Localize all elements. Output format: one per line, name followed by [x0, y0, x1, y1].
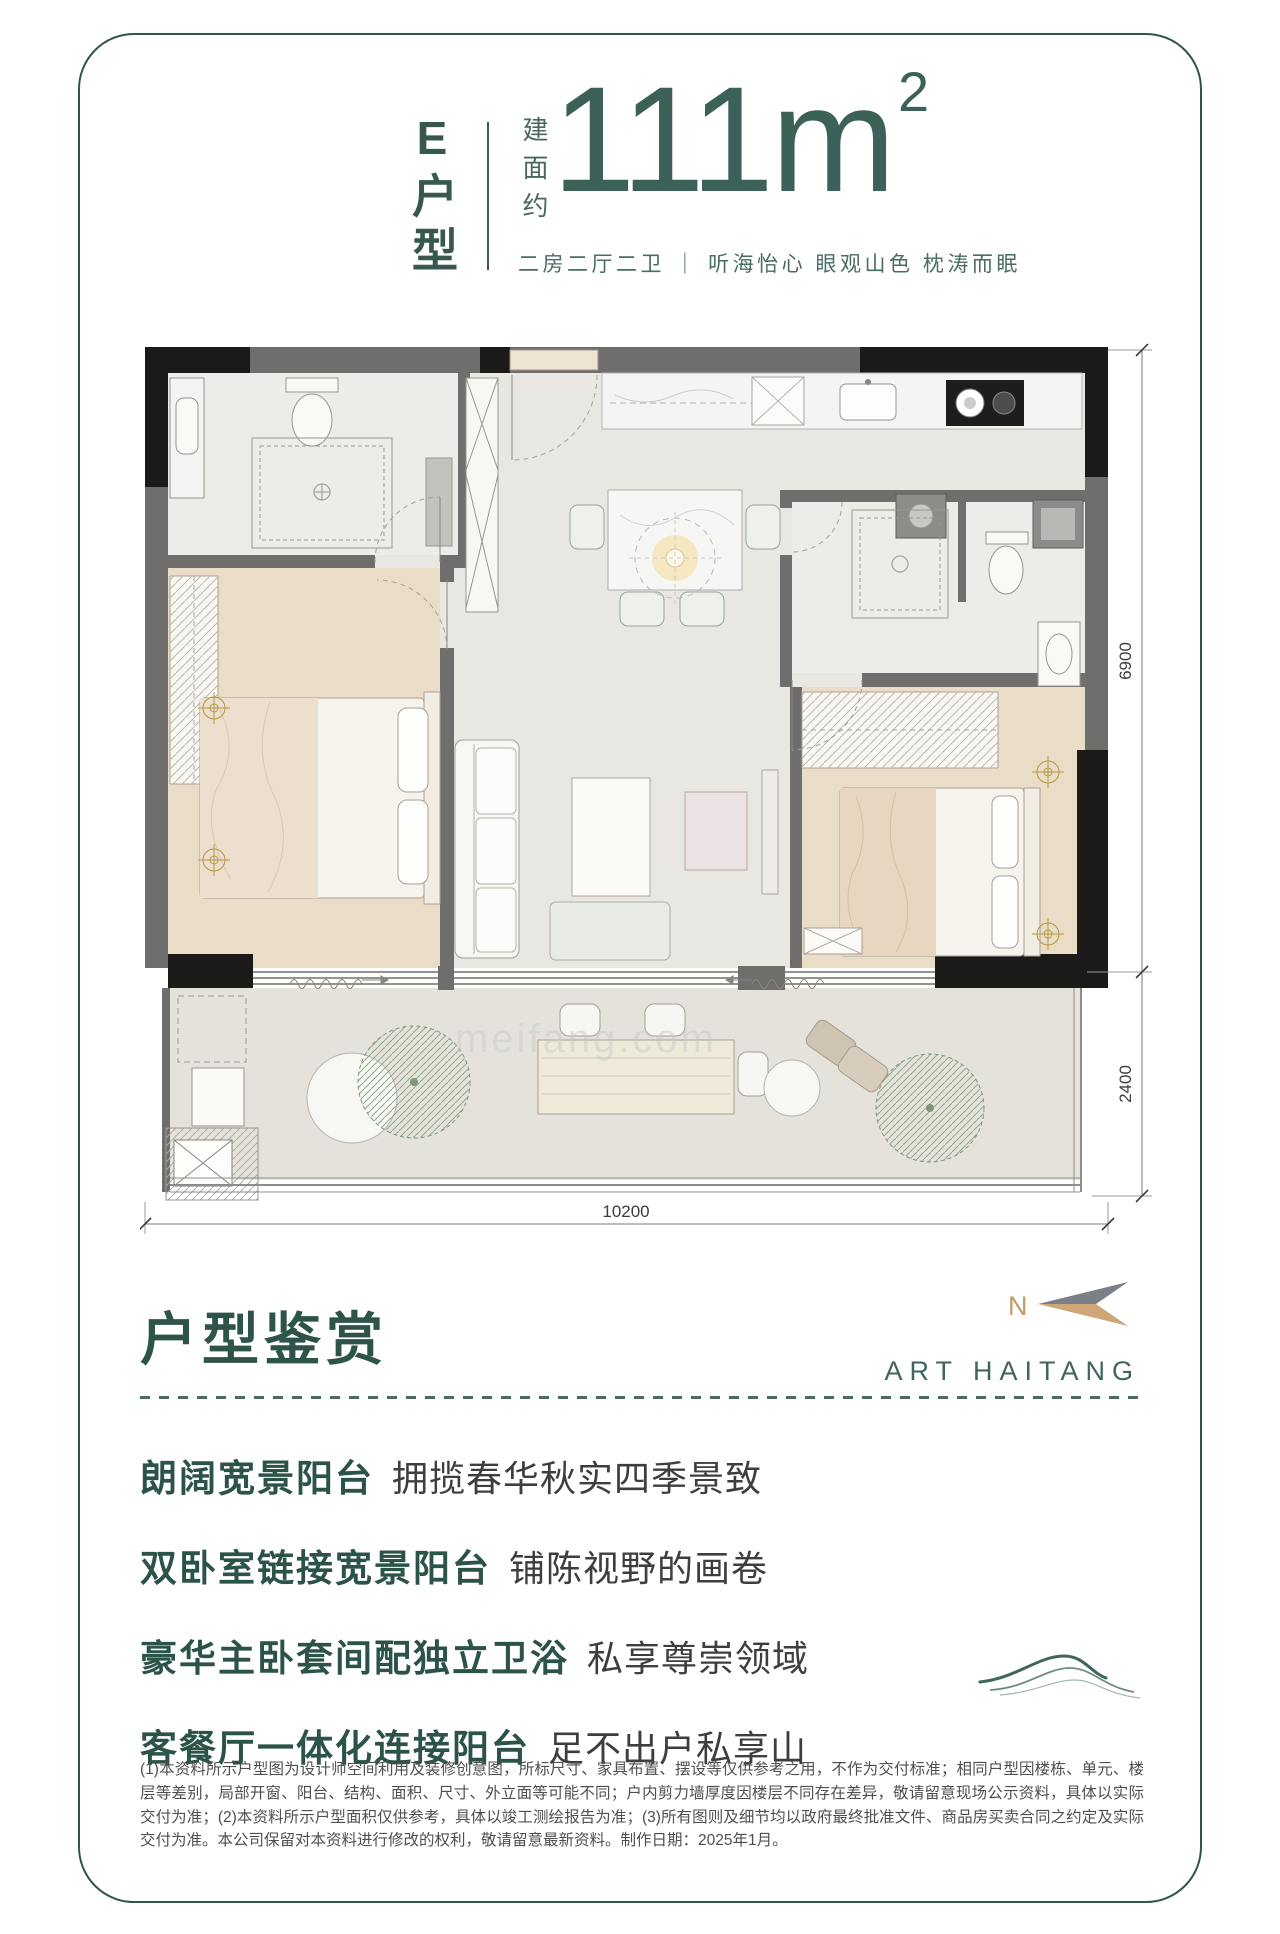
- wave-line-2: [990, 1668, 1134, 1692]
- dining-chair: [680, 592, 724, 626]
- feature-item: 豪华主卧套间配独立卫浴私享尊崇领域: [140, 1628, 1040, 1682]
- wave-logo: [972, 1642, 1147, 1704]
- pillow: [398, 800, 428, 884]
- wall-bath2-bottom-a: [780, 673, 792, 687]
- header-tagline: 二房二厅二卫 ｜ 听海怡心 眼观山色 枕涛而眠: [518, 248, 1021, 278]
- feature-head: 豪华主卧套间配独立卫浴: [140, 1639, 569, 1680]
- vanity2: [1038, 622, 1080, 686]
- sofa-cushion: [476, 888, 516, 952]
- feature-item: 朗阔宽景阳台拥揽春华秋实四季景致: [140, 1448, 1040, 1502]
- master-duvet: [200, 698, 318, 898]
- floorplan-drawing: meifang.com 6900 2400 10200: [140, 340, 1160, 1245]
- feature-desc: 铺陈视野的画卷: [509, 1549, 768, 1589]
- dim-height-main: 6900: [1116, 642, 1135, 680]
- planter-pot: [764, 1060, 820, 1116]
- dim-height-balcony: 2400: [1116, 1065, 1135, 1103]
- wall-bath-south-b: [440, 555, 460, 568]
- area-prefix-label: 建面约: [516, 116, 553, 256]
- north-arrow-lower: [1038, 1304, 1128, 1326]
- dim-width: 10200: [602, 1202, 649, 1221]
- feature-list: 朗阔宽景阳台拥揽春华秋实四季景致 双卧室链接宽景阳台铺陈视野的画卷 豪华主卧套间…: [140, 1448, 1040, 1808]
- dashed-divider: [140, 1396, 1140, 1399]
- south-windows: [253, 966, 935, 990]
- utility-table: [192, 1068, 244, 1126]
- disclaimer-text: (1)本资料所示户型图为设计师空间利用及装修创意图，所标尺寸、家具布置、摆设等仅…: [140, 1758, 1144, 1853]
- sofa-cushion: [476, 748, 516, 814]
- dining-chair: [746, 505, 780, 549]
- north-compass: N: [1000, 1276, 1140, 1332]
- feature-head: 朗阔宽景阳台: [140, 1459, 374, 1500]
- wall-bath2-left-a: [780, 490, 792, 508]
- feature-desc: 拥揽春华秋实四季景致: [392, 1459, 762, 1499]
- pillow2: [992, 796, 1018, 868]
- wall-masterbed-stub: [440, 568, 454, 582]
- sofa-cushion: [476, 818, 516, 884]
- north-label: N: [1008, 1291, 1028, 1321]
- sink-faucet: [865, 379, 871, 385]
- side-table: [685, 792, 747, 870]
- area-number: 111m: [552, 55, 893, 223]
- header-divider: [487, 122, 489, 270]
- window-mullion: [438, 966, 454, 990]
- wall-bath-south-a: [168, 555, 375, 568]
- feature-desc: 私享尊崇领域: [587, 1639, 809, 1679]
- wave-line-1: [980, 1656, 1106, 1682]
- toilet-tank: [286, 378, 338, 392]
- plan-type-label: E户型: [404, 112, 460, 292]
- kitchen-sink: [840, 384, 896, 420]
- bath-sink: [176, 398, 198, 454]
- wall-bath2-divider: [958, 502, 966, 602]
- toilet2-tank: [986, 532, 1028, 544]
- watermark-text: meifang.com: [455, 1017, 717, 1061]
- section-title: 户型鉴赏: [140, 1294, 388, 1376]
- area-value: 111m2: [552, 64, 929, 214]
- dining-chair: [620, 592, 664, 626]
- ottoman: [550, 902, 670, 960]
- entry-door-frame: [510, 350, 598, 370]
- tv-console: [762, 770, 778, 894]
- wall-masterbed-right: [440, 648, 454, 968]
- coffee-table: [572, 778, 650, 896]
- feature-head: 双卧室链接宽景阳台: [140, 1549, 491, 1590]
- wave-line-3: [1000, 1680, 1140, 1698]
- area-superscript: 2: [898, 60, 929, 123]
- feature-item: 双卧室链接宽景阳台铺陈视野的画卷: [140, 1538, 1040, 1592]
- bath-cabinet: [426, 458, 452, 546]
- wall-bath2-left-b: [780, 555, 792, 673]
- washer-door: [909, 504, 933, 528]
- pillow2: [992, 876, 1018, 948]
- pillow: [398, 708, 428, 792]
- toilet2-bowl: [989, 546, 1023, 594]
- brochure-page: E户型 建面约 111m2 二房二厅二卫 ｜ 听海怡心 眼观山色 枕涛而眠: [0, 0, 1280, 1934]
- brand-wordmark: ART HAITANG: [790, 1356, 1140, 1387]
- balcony-chair: [738, 1052, 768, 1096]
- burner-right: [993, 392, 1015, 414]
- north-arrow-upper: [1038, 1282, 1128, 1304]
- dining-chair: [570, 505, 604, 549]
